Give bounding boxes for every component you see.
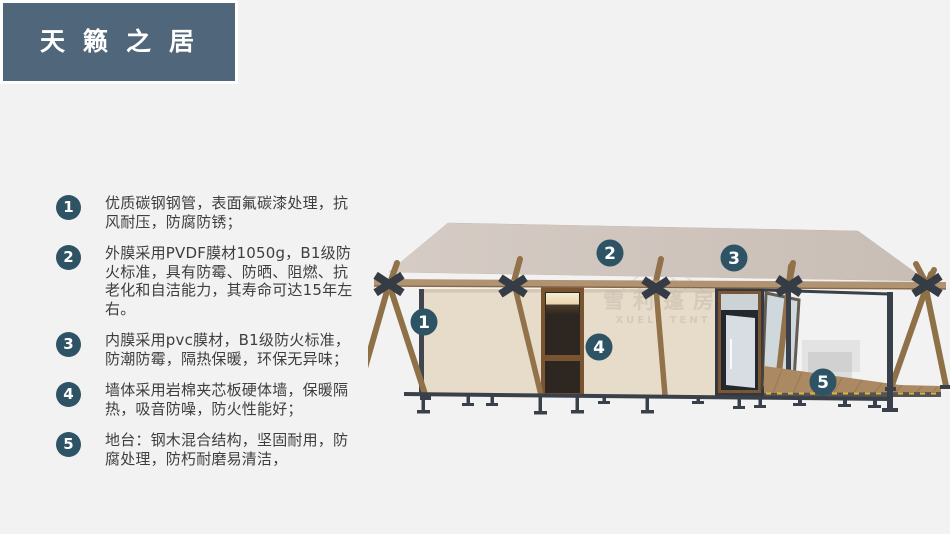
feature-text-1: 优质碳钢钢管，表面氟碳漆处理，抗风耐压，防腐防锈； [105,194,361,231]
marker-3: 3 [721,245,748,272]
glass-door-section [715,288,764,396]
title-block: 天籁之居 [0,0,238,84]
feature-text-4: 墙体采用岩棉夹芯板硬体墙，保暖隔热，吸音防噪，防火性能好； [105,381,361,418]
feature-text-3: 内膜采用pvc膜材，B1级防火标准，防潮防霉，隔热保暖，环保无异味； [105,331,361,368]
svg-text:5: 5 [817,373,829,393]
svg-text:2: 2 [604,244,616,264]
marker-2: 2 [597,240,624,267]
feature-list: 1 优质碳钢钢管，表面氟碳漆处理，抗风耐压，防腐防锈； 2 外膜采用PVDF膜材… [56,194,366,481]
svg-text:3: 3 [728,249,740,269]
number-badge-3: 3 [56,332,81,357]
marker-1: 1 [411,309,438,336]
feature-text-5: 地台：钢木混合结构，坚固耐用，防腐处理，防朽耐磨易清洁， [105,431,361,468]
number-badge-2: 2 [56,245,81,270]
list-item: 2 外膜采用PVDF膜材1050g，B1级防火标准，具有防霉、防晒、阻燃、抗老化… [56,244,366,318]
svg-text:XUELI TENT: XUELI TENT [615,315,710,326]
svg-text:4: 4 [593,338,605,358]
left-v-poles [368,284,426,397]
list-item: 4 墙体采用岩棉夹芯板硬体墙，保暖隔热，吸音防噪，防火性能好； [56,381,366,418]
list-item: 3 内膜采用pvc膜材，B1级防火标准，防潮防霉，隔热保暖，环保无异味； [56,331,366,368]
page-title: 天籁之居 [3,3,235,81]
list-item: 1 优质碳钢钢管，表面氟碳漆处理，抗风耐压，防腐防锈； [56,194,366,231]
right-corner-post [887,292,893,409]
feature-text-2: 外膜采用PVDF膜材1050g，B1级防火标准，具有防霉、防晒、阻燃、抗老化和自… [105,244,361,318]
door-1 [541,287,584,397]
number-badge-4: 4 [56,382,81,407]
transom-window [721,294,758,310]
number-badge-5: 5 [56,432,81,457]
marker-4: 4 [586,334,613,361]
number-badge-1: 1 [56,195,81,220]
svg-text:1: 1 [418,313,430,333]
deck-platform [764,366,941,408]
tent-render: 雪利篷房 XUELI TENT [368,204,950,432]
marker-5: 5 [810,369,837,396]
list-item: 5 地台：钢木混合结构，坚固耐用，防腐处理，防朽耐磨易清洁， [56,431,366,468]
